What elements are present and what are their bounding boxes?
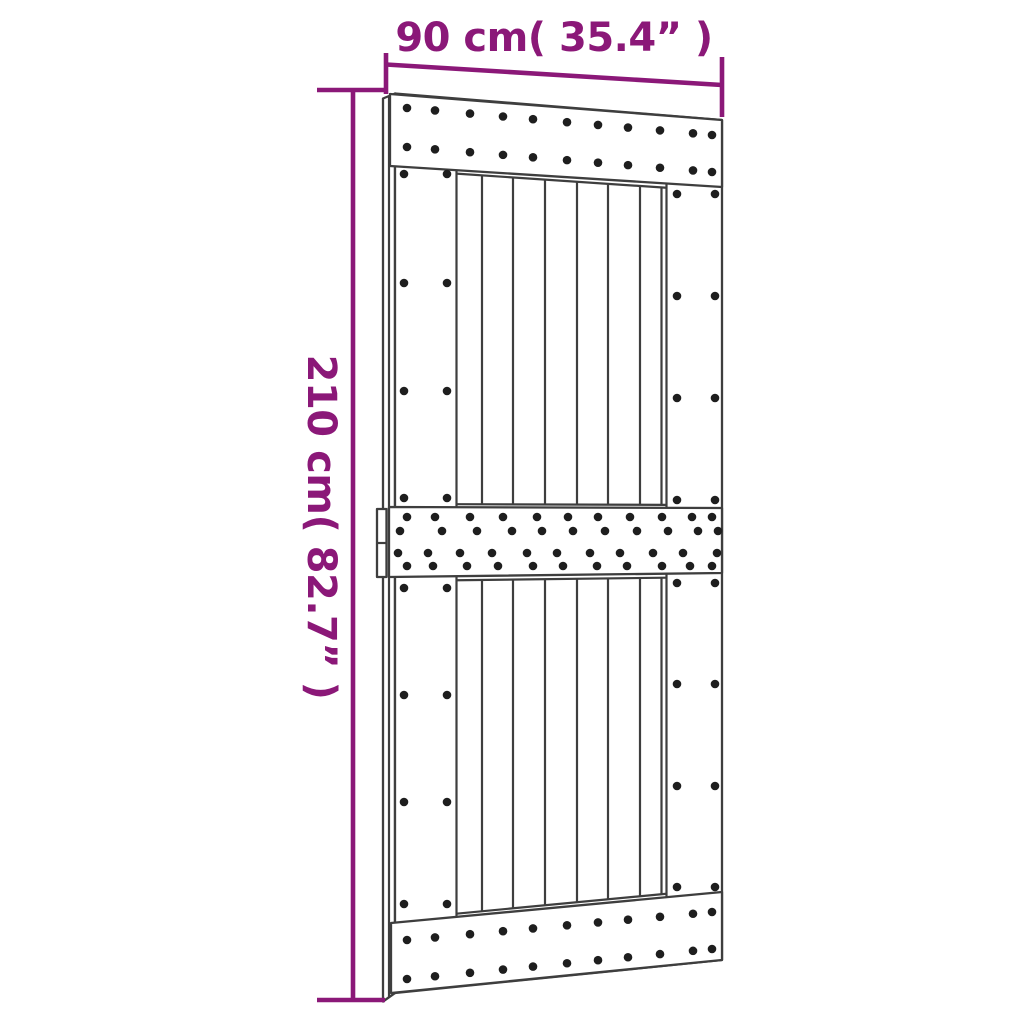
nail-dot: [624, 953, 633, 962]
nail-dot: [689, 909, 698, 918]
nail-dot: [553, 549, 562, 558]
nail-dot: [673, 496, 682, 505]
nail-dot: [456, 549, 465, 558]
nail-dot: [594, 513, 603, 522]
nail-dot: [586, 549, 595, 558]
nail-dot: [711, 883, 720, 892]
door-drawing: [377, 94, 722, 1002]
nail-dot: [711, 782, 720, 791]
nail-dot: [400, 900, 409, 909]
nail-dot: [443, 798, 452, 807]
nail-dot: [689, 166, 698, 175]
nail-dot: [711, 680, 720, 689]
width-dimension-label: 90 cm( 35.4” ): [395, 15, 712, 61]
door-handle: [377, 509, 387, 577]
nail-dot: [396, 527, 405, 536]
nail-dot: [529, 962, 538, 971]
nail-dot: [431, 106, 440, 115]
nail-dot: [403, 936, 412, 945]
nail-dot: [443, 279, 452, 288]
nail-dot: [673, 782, 682, 791]
nail-dot: [686, 562, 695, 571]
nail-dot: [626, 513, 635, 522]
nail-dot: [499, 151, 508, 160]
nail-dot: [673, 292, 682, 301]
nail-dot: [431, 145, 440, 154]
nail-dot: [529, 924, 538, 933]
nail-dot: [711, 579, 720, 588]
nail-dot: [623, 562, 632, 571]
nail-dot: [708, 131, 717, 140]
nail-dot: [624, 915, 633, 924]
nail-dot: [708, 562, 717, 571]
nail-dot: [689, 947, 698, 956]
nail-dot: [466, 109, 475, 118]
nail-dot: [563, 118, 572, 127]
planks-bottom-step: [457, 504, 667, 505]
nail-dot: [593, 562, 602, 571]
nail-dot: [708, 945, 717, 954]
door-dimension-diagram: 90 cm( 35.4” ) 210 cm( 82.7” ): [0, 0, 1024, 1024]
nail-dot: [403, 104, 412, 113]
nail-dot: [624, 161, 633, 170]
nail-dot: [499, 927, 508, 936]
nail-dot: [633, 527, 642, 536]
nail-dot: [533, 513, 542, 522]
nail-dot: [594, 158, 603, 167]
nail-dot: [673, 680, 682, 689]
nail-dot: [594, 956, 603, 965]
nail-dot: [624, 123, 633, 132]
nail-dot: [466, 930, 475, 939]
nail-dot: [714, 527, 723, 536]
nail-dot: [400, 170, 409, 179]
nail-dot: [688, 513, 697, 522]
nail-dot: [679, 549, 688, 558]
nail-dot: [499, 965, 508, 974]
nail-dot: [466, 148, 475, 157]
nail-dot: [443, 584, 452, 593]
nail-dot: [656, 912, 665, 921]
nail-dot: [538, 527, 547, 536]
nail-dot: [564, 513, 573, 522]
nail-dot: [656, 163, 665, 172]
nail-dot: [569, 527, 578, 536]
nail-dot: [443, 691, 452, 700]
nail-dot: [563, 959, 572, 968]
nail-dot: [488, 549, 497, 558]
nail-dot: [443, 387, 452, 396]
nail-dot: [431, 513, 440, 522]
nail-dot: [424, 549, 433, 558]
nail-dot: [673, 190, 682, 199]
nail-dot: [616, 549, 625, 558]
nail-dot: [443, 900, 452, 909]
height-dimension-label: 210 cm( 82.7” ): [298, 355, 344, 700]
nail-dot: [466, 969, 475, 978]
nail-dot: [403, 975, 412, 984]
nail-dot: [673, 883, 682, 892]
nail-dot: [563, 156, 572, 165]
nail-dot: [649, 549, 658, 558]
nail-dot: [499, 513, 508, 522]
nail-dot: [711, 292, 720, 301]
nail-dot: [403, 143, 412, 152]
nail-dot: [594, 121, 603, 130]
nail-dot: [499, 112, 508, 121]
nail-dot: [431, 972, 440, 981]
nail-dot: [559, 562, 568, 571]
nail-dot: [523, 549, 532, 558]
nail-dot: [711, 190, 720, 199]
nail-dot: [400, 387, 409, 396]
nail-dot: [658, 562, 667, 571]
nail-dot: [438, 527, 447, 536]
nail-dot: [400, 494, 409, 503]
nail-dot: [473, 527, 482, 536]
diagram-svg: 90 cm( 35.4” ) 210 cm( 82.7” ): [0, 0, 1024, 1024]
nail-dot: [529, 562, 538, 571]
nail-dot: [443, 170, 452, 179]
nail-dot: [529, 115, 538, 124]
nail-dot: [708, 168, 717, 177]
nail-dot: [429, 562, 438, 571]
nail-dot: [394, 549, 403, 558]
width-line: [386, 65, 722, 86]
nail-dot: [656, 950, 665, 959]
nail-dot: [494, 562, 503, 571]
nail-dot: [529, 153, 538, 162]
nail-dot: [673, 579, 682, 588]
nail-dot: [431, 933, 440, 942]
nail-dot: [711, 496, 720, 505]
nail-dot: [466, 513, 475, 522]
nail-dot: [664, 527, 673, 536]
nail-dot: [403, 562, 412, 571]
nail-dot: [708, 908, 717, 917]
nail-dot: [689, 129, 698, 138]
nail-dot: [400, 691, 409, 700]
nail-dot: [563, 921, 572, 930]
nail-dot: [443, 494, 452, 503]
nail-dot: [601, 527, 610, 536]
nail-dot: [694, 527, 703, 536]
nail-dot: [400, 798, 409, 807]
nail-dot: [713, 549, 722, 558]
nail-dot: [711, 394, 720, 403]
nail-dot: [400, 584, 409, 593]
nail-dot: [708, 513, 717, 522]
nail-dot: [400, 279, 409, 288]
nail-dot: [403, 513, 412, 522]
nail-dot: [508, 527, 517, 536]
nail-dot: [658, 513, 667, 522]
nail-dot: [463, 562, 472, 571]
nail-dot: [594, 918, 603, 927]
nail-dot: [656, 126, 665, 135]
nail-dot: [673, 394, 682, 403]
